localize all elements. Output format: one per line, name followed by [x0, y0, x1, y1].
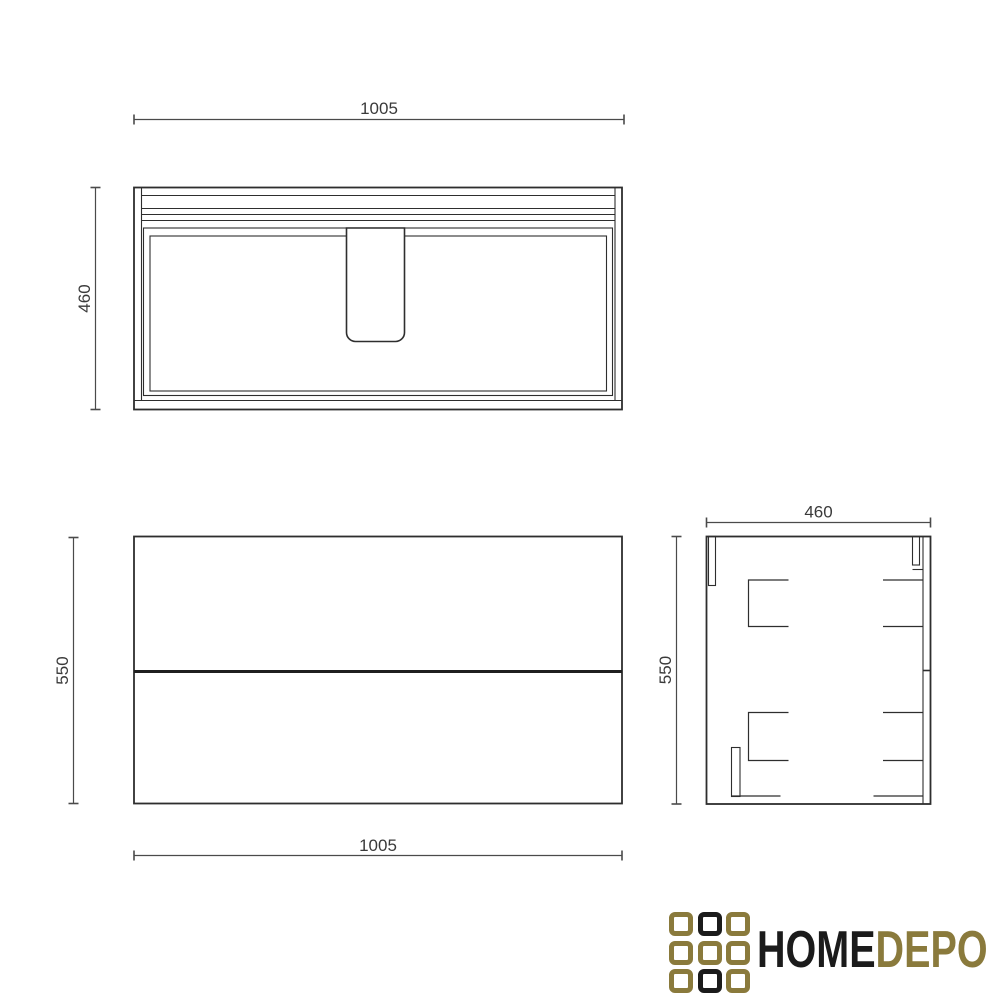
side-view-height-dimension: 550	[656, 537, 682, 805]
side-view-bottom-bracket	[732, 748, 741, 797]
logo-grid-square	[726, 969, 750, 993]
front-view-width-dimension: 1005	[134, 836, 622, 861]
logo-grid-square	[669, 912, 693, 936]
logo-grid-square	[698, 912, 722, 936]
brand-logo-text-secondary: DEPO	[876, 921, 988, 979]
side-view-front-rail	[709, 537, 716, 586]
technical-drawing: 1005 460 550	[0, 0, 1000, 1000]
side-view-back-rail	[913, 537, 920, 566]
brand-logo: HOMEDEPO	[669, 912, 750, 993]
front-view: 550 1005	[53, 537, 622, 861]
brand-logo-text: HOMEDEPO	[757, 924, 988, 976]
logo-grid-square	[669, 941, 693, 965]
logo-grid-square	[698, 941, 722, 965]
drawing-canvas: 1005 460 550	[0, 0, 1000, 1000]
top-view-width-label: 1005	[360, 99, 398, 118]
top-view-depth-label: 460	[75, 284, 94, 312]
logo-grid-square	[669, 969, 693, 993]
logo-grid-icon	[669, 912, 750, 993]
top-view: 1005 460	[75, 99, 624, 410]
side-view-upper-runner-bracket	[749, 580, 789, 627]
top-view-faucet-cutout	[347, 228, 405, 342]
logo-grid-square	[726, 912, 750, 936]
top-view-width-dimension: 1005	[134, 99, 624, 125]
top-view-depth-dimension: 460	[75, 188, 101, 410]
front-view-height-dimension: 550	[53, 538, 79, 804]
side-view-depth-label: 460	[804, 503, 832, 522]
logo-grid-square	[698, 969, 722, 993]
side-view-depth-dimension: 460	[707, 503, 931, 528]
front-view-width-label: 1005	[359, 836, 397, 855]
front-view-height-label: 550	[53, 656, 72, 684]
brand-logo-text-primary: HOME	[757, 921, 876, 979]
side-view-height-label: 550	[656, 656, 675, 684]
logo-grid-square	[726, 941, 750, 965]
side-view-lower-runner-bracket	[749, 713, 789, 761]
side-view: 460 550	[656, 503, 931, 805]
